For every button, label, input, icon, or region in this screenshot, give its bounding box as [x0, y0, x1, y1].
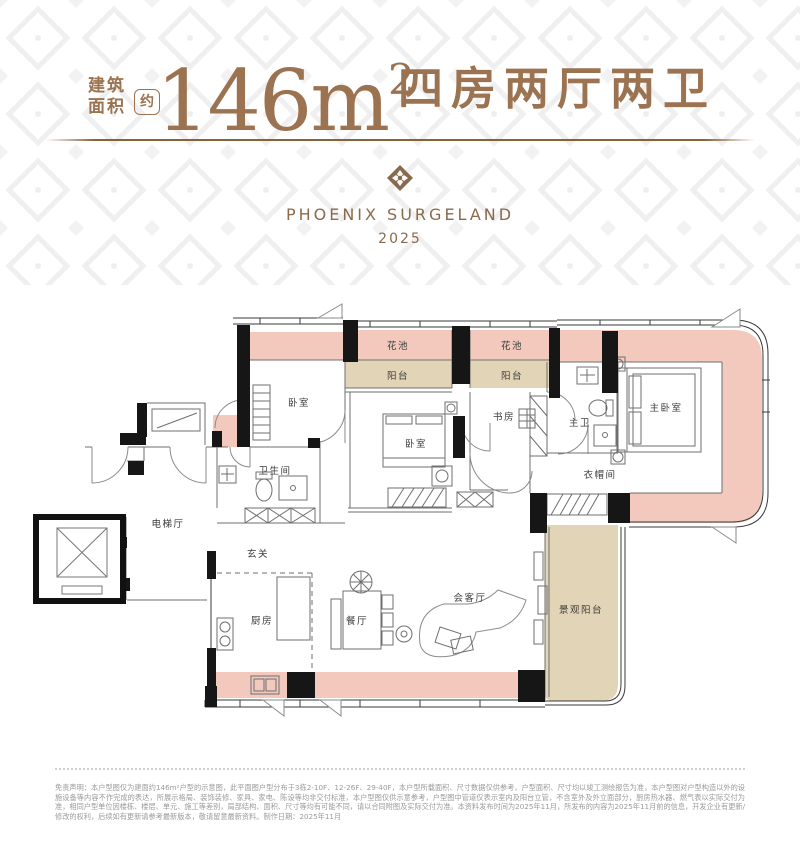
floorplan: 花池 花池 阳台 阳台 卧室 卫生间 电梯厅 玄关 厨房 餐厅 会客厅 书房 卧…	[0, 0, 800, 866]
room-label: 阳台	[387, 370, 409, 382]
room-label: 花池	[387, 340, 409, 352]
room-label: 主卧室	[649, 402, 682, 414]
room-label: 卧室	[405, 438, 427, 450]
room-label: 阳台	[501, 370, 523, 382]
beige-zones	[345, 360, 618, 701]
room-label: 会客厅	[453, 592, 486, 604]
room-label: 衣帽间	[583, 469, 616, 481]
room-label: 电梯厅	[151, 518, 184, 530]
room-label: 景观阳台	[559, 604, 603, 616]
room-label: 玄关	[247, 548, 269, 560]
room-label: 花池	[501, 340, 523, 352]
disclaimer-text: 免责声明：本户型图仅为建面约146m²户型的示意图，此平面图户型分布于3栋2-1…	[55, 768, 745, 821]
room-label: 餐厅	[346, 615, 368, 627]
door-arcs	[92, 392, 588, 493]
room-label: 卫生间	[258, 465, 291, 477]
room-label: 卧室	[288, 397, 310, 409]
room-label: 主卫	[569, 417, 591, 429]
room-label: 书房	[493, 411, 515, 423]
room-label: 厨房	[251, 615, 273, 627]
elevator-shaft	[36, 517, 123, 601]
